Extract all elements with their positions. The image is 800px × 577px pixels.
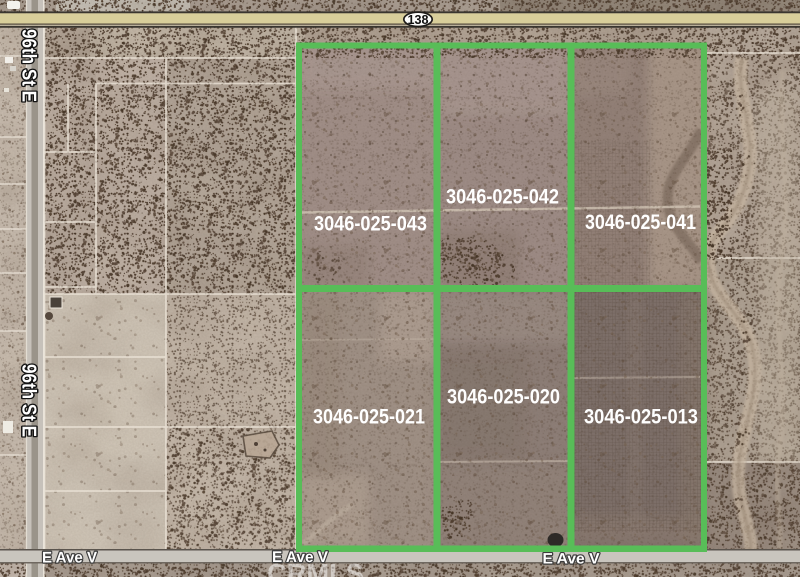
svg-text:96th St E: 96th St E [18, 364, 40, 437]
svg-text:3046-025-042: 3046-025-042 [446, 185, 559, 209]
svg-text:3046-025-021: 3046-025-021 [313, 405, 425, 429]
svg-text:3046-025-043: 3046-025-043 [314, 212, 427, 236]
svg-text:138: 138 [408, 13, 429, 27]
svg-text:3046-025-041: 3046-025-041 [585, 210, 696, 234]
svg-text:96th St E: 96th St E [18, 29, 40, 102]
svg-text:E Ave V: E Ave V [543, 551, 600, 568]
svg-text:CRMLS: CRMLS [267, 559, 364, 577]
svg-text:3046-025-020: 3046-025-020 [447, 385, 560, 409]
svg-text:E Ave V: E Ave V [42, 550, 98, 567]
svg-text:3046-025-013: 3046-025-013 [584, 405, 698, 429]
